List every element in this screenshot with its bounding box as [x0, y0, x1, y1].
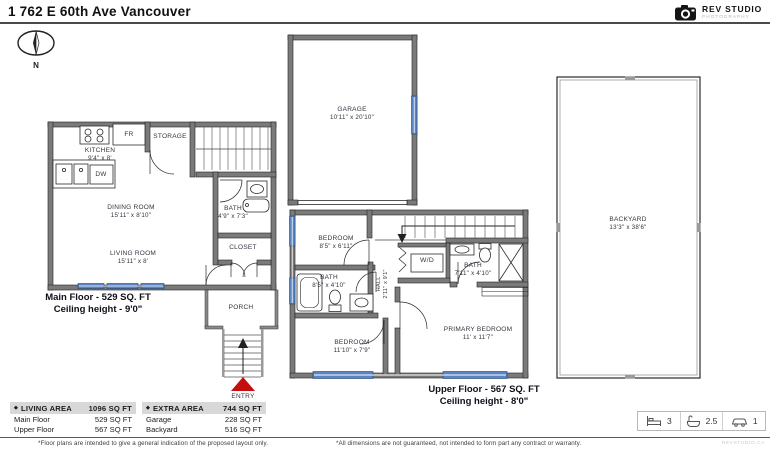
living-area-total: 1096 SQ FT	[89, 404, 132, 413]
diamond-icon: ◆	[14, 405, 18, 411]
bathtub-icon	[686, 415, 701, 428]
disclaimer-right: *All dimensions are not guaranteed, not …	[336, 440, 581, 447]
beds-feature: 3	[638, 412, 680, 430]
main-bath-label: BATH4'9" x 7'3"	[185, 205, 281, 221]
toilet	[480, 248, 491, 262]
car-icon	[731, 415, 748, 427]
kitchen-label: KITCHEN9'4" x 8'	[52, 147, 148, 163]
upper-bedroom2-label: BEDROOM11'10" x 7'9"	[304, 339, 400, 355]
garage-window	[412, 96, 418, 134]
table-row: Backyard516 SQ FT	[142, 424, 266, 434]
backyard-label: BACKYARD13'3" x 38'6"	[580, 216, 676, 232]
bath-sink	[247, 181, 267, 197]
fridge-label: FR	[81, 131, 177, 139]
disclaimer-left: *Floor plans are intended to give a gene…	[38, 440, 268, 447]
table-row: Main Floor529 SQ FT	[10, 414, 136, 424]
upper-stairs	[375, 216, 515, 240]
hall-label: HALL2'11" x 9'1"	[376, 249, 390, 319]
extra-area-total: 744 SQ FT	[223, 404, 262, 413]
living-area-table: ◆LIVING AREA 1096 SQ FT Main Floor529 SQ…	[10, 402, 136, 434]
features-strip: 3 2.5 1	[637, 411, 766, 431]
garage-door	[298, 201, 407, 205]
main-floor-windows	[78, 284, 164, 289]
main-floor-caption: Main Floor - 529 SQ. FTCeiling height - …	[37, 292, 159, 317]
extra-area-table: ◆EXTRA AREA 744 SQ FT Garage228 SQ FT Ba…	[142, 402, 266, 434]
entry-arrow-icon	[231, 377, 255, 391]
table-row: Upper Floor567 SQ FT	[10, 424, 136, 434]
dining-room-label: DINING ROOM15'11" x 8'10"	[83, 204, 179, 220]
footer-divider	[0, 437, 770, 438]
closet-label: CLOSET	[195, 244, 291, 252]
up-arrow-icon	[238, 338, 248, 348]
parking-feature: 1	[722, 412, 765, 430]
website-label: REVSTUDIO.CA	[722, 441, 765, 446]
bed-icon	[646, 415, 662, 427]
baths-feature: 2.5	[680, 412, 723, 430]
upper-bath-right-label: BATH7'11" x 4'10"	[428, 262, 518, 278]
living-area-header: ◆LIVING AREA 1096 SQ FT	[10, 402, 136, 414]
table-row: Garage228 SQ FT	[142, 414, 266, 424]
entry-stairs	[222, 329, 264, 391]
porch-label: PORCH	[193, 304, 289, 312]
extra-area-header: ◆EXTRA AREA 744 SQ FT	[142, 402, 266, 414]
upper-floor-caption: Upper Floor - 567 SQ. FTCeiling height -…	[399, 384, 569, 409]
living-room-label: LIVING ROOM15'11" x 8'	[85, 250, 181, 266]
upper-bedroom1-label: BEDROOM8'5" x 6'11"	[288, 235, 384, 251]
primary-bedroom-label: PRIMARY BEDROOM11' x 11'7"	[418, 326, 538, 342]
upper-bath-left-label: BATH8'5" x 4'10"	[289, 274, 369, 290]
garage-label: GARAGE10'11" x 20'10"	[304, 106, 400, 122]
down-arrow-icon	[398, 234, 407, 243]
vanity-sink	[350, 294, 373, 311]
toilet	[330, 290, 341, 304]
dishwasher-label: DW	[53, 171, 149, 179]
entry-label: ENTRY	[195, 393, 291, 401]
diamond-icon: ◆	[146, 405, 150, 411]
bifold-door	[399, 247, 406, 272]
